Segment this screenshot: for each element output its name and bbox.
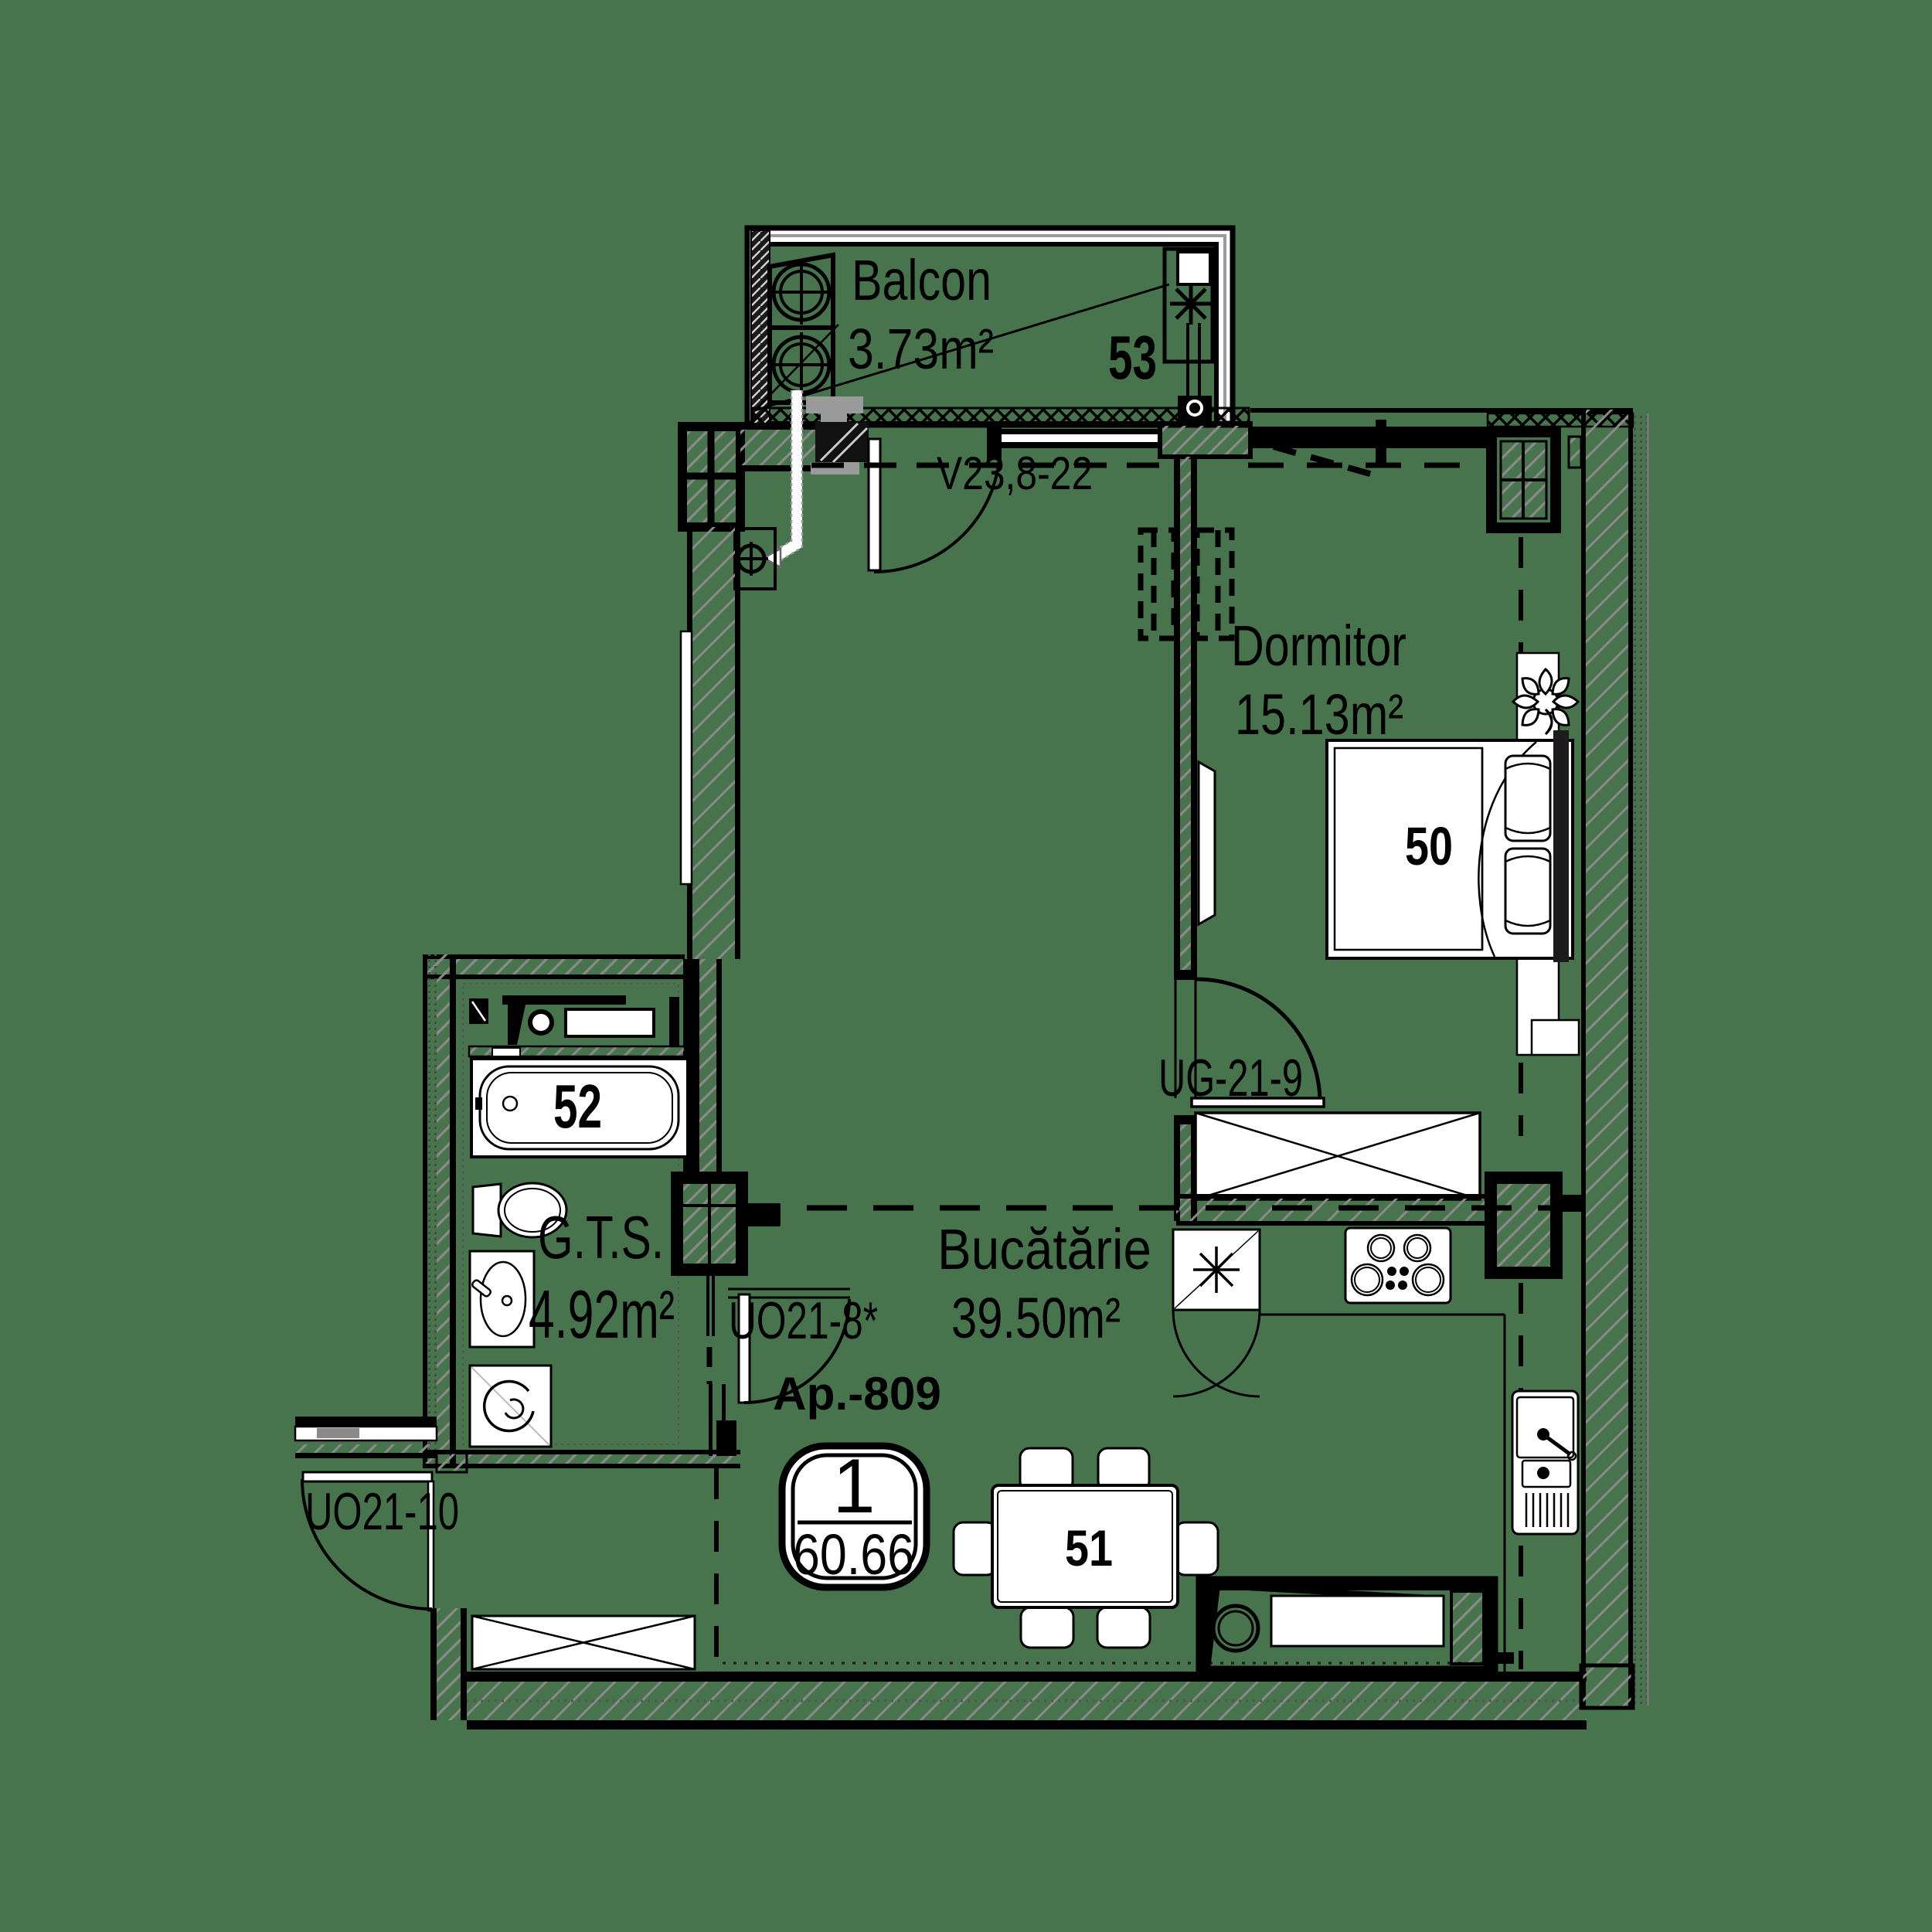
svg-text:Balcon: Balcon [852, 248, 992, 312]
svg-text:1: 1 [832, 1443, 875, 1529]
svg-text:Bucătărie: Bucătărie [937, 1217, 1151, 1281]
svg-text:UO21-8*: UO21-8* [729, 1291, 878, 1350]
svg-text:4.92m²: 4.92m² [529, 1276, 675, 1352]
svg-text:50: 50 [1405, 816, 1453, 876]
svg-text:Dormitor: Dormitor [1231, 614, 1406, 678]
svg-text:UO21-10: UO21-10 [305, 1482, 459, 1541]
svg-text:15.13m²: 15.13m² [1235, 682, 1403, 747]
svg-text:V23,8-22: V23,8-22 [937, 447, 1093, 499]
svg-text:60.66: 60.66 [793, 1522, 914, 1587]
svg-text:3.73m²: 3.73m² [848, 317, 994, 381]
svg-text:52: 52 [553, 1072, 602, 1141]
svg-text:UG-21-9: UG-21-9 [1158, 1049, 1303, 1107]
svg-text:39.50m²: 39.50m² [951, 1286, 1121, 1350]
svg-text:53: 53 [1108, 323, 1157, 392]
svg-text:Ap.-809: Ap.-809 [773, 1368, 941, 1420]
svg-text:51: 51 [1065, 1519, 1113, 1577]
svg-text:G.T.S.: G.T.S. [538, 1203, 664, 1271]
